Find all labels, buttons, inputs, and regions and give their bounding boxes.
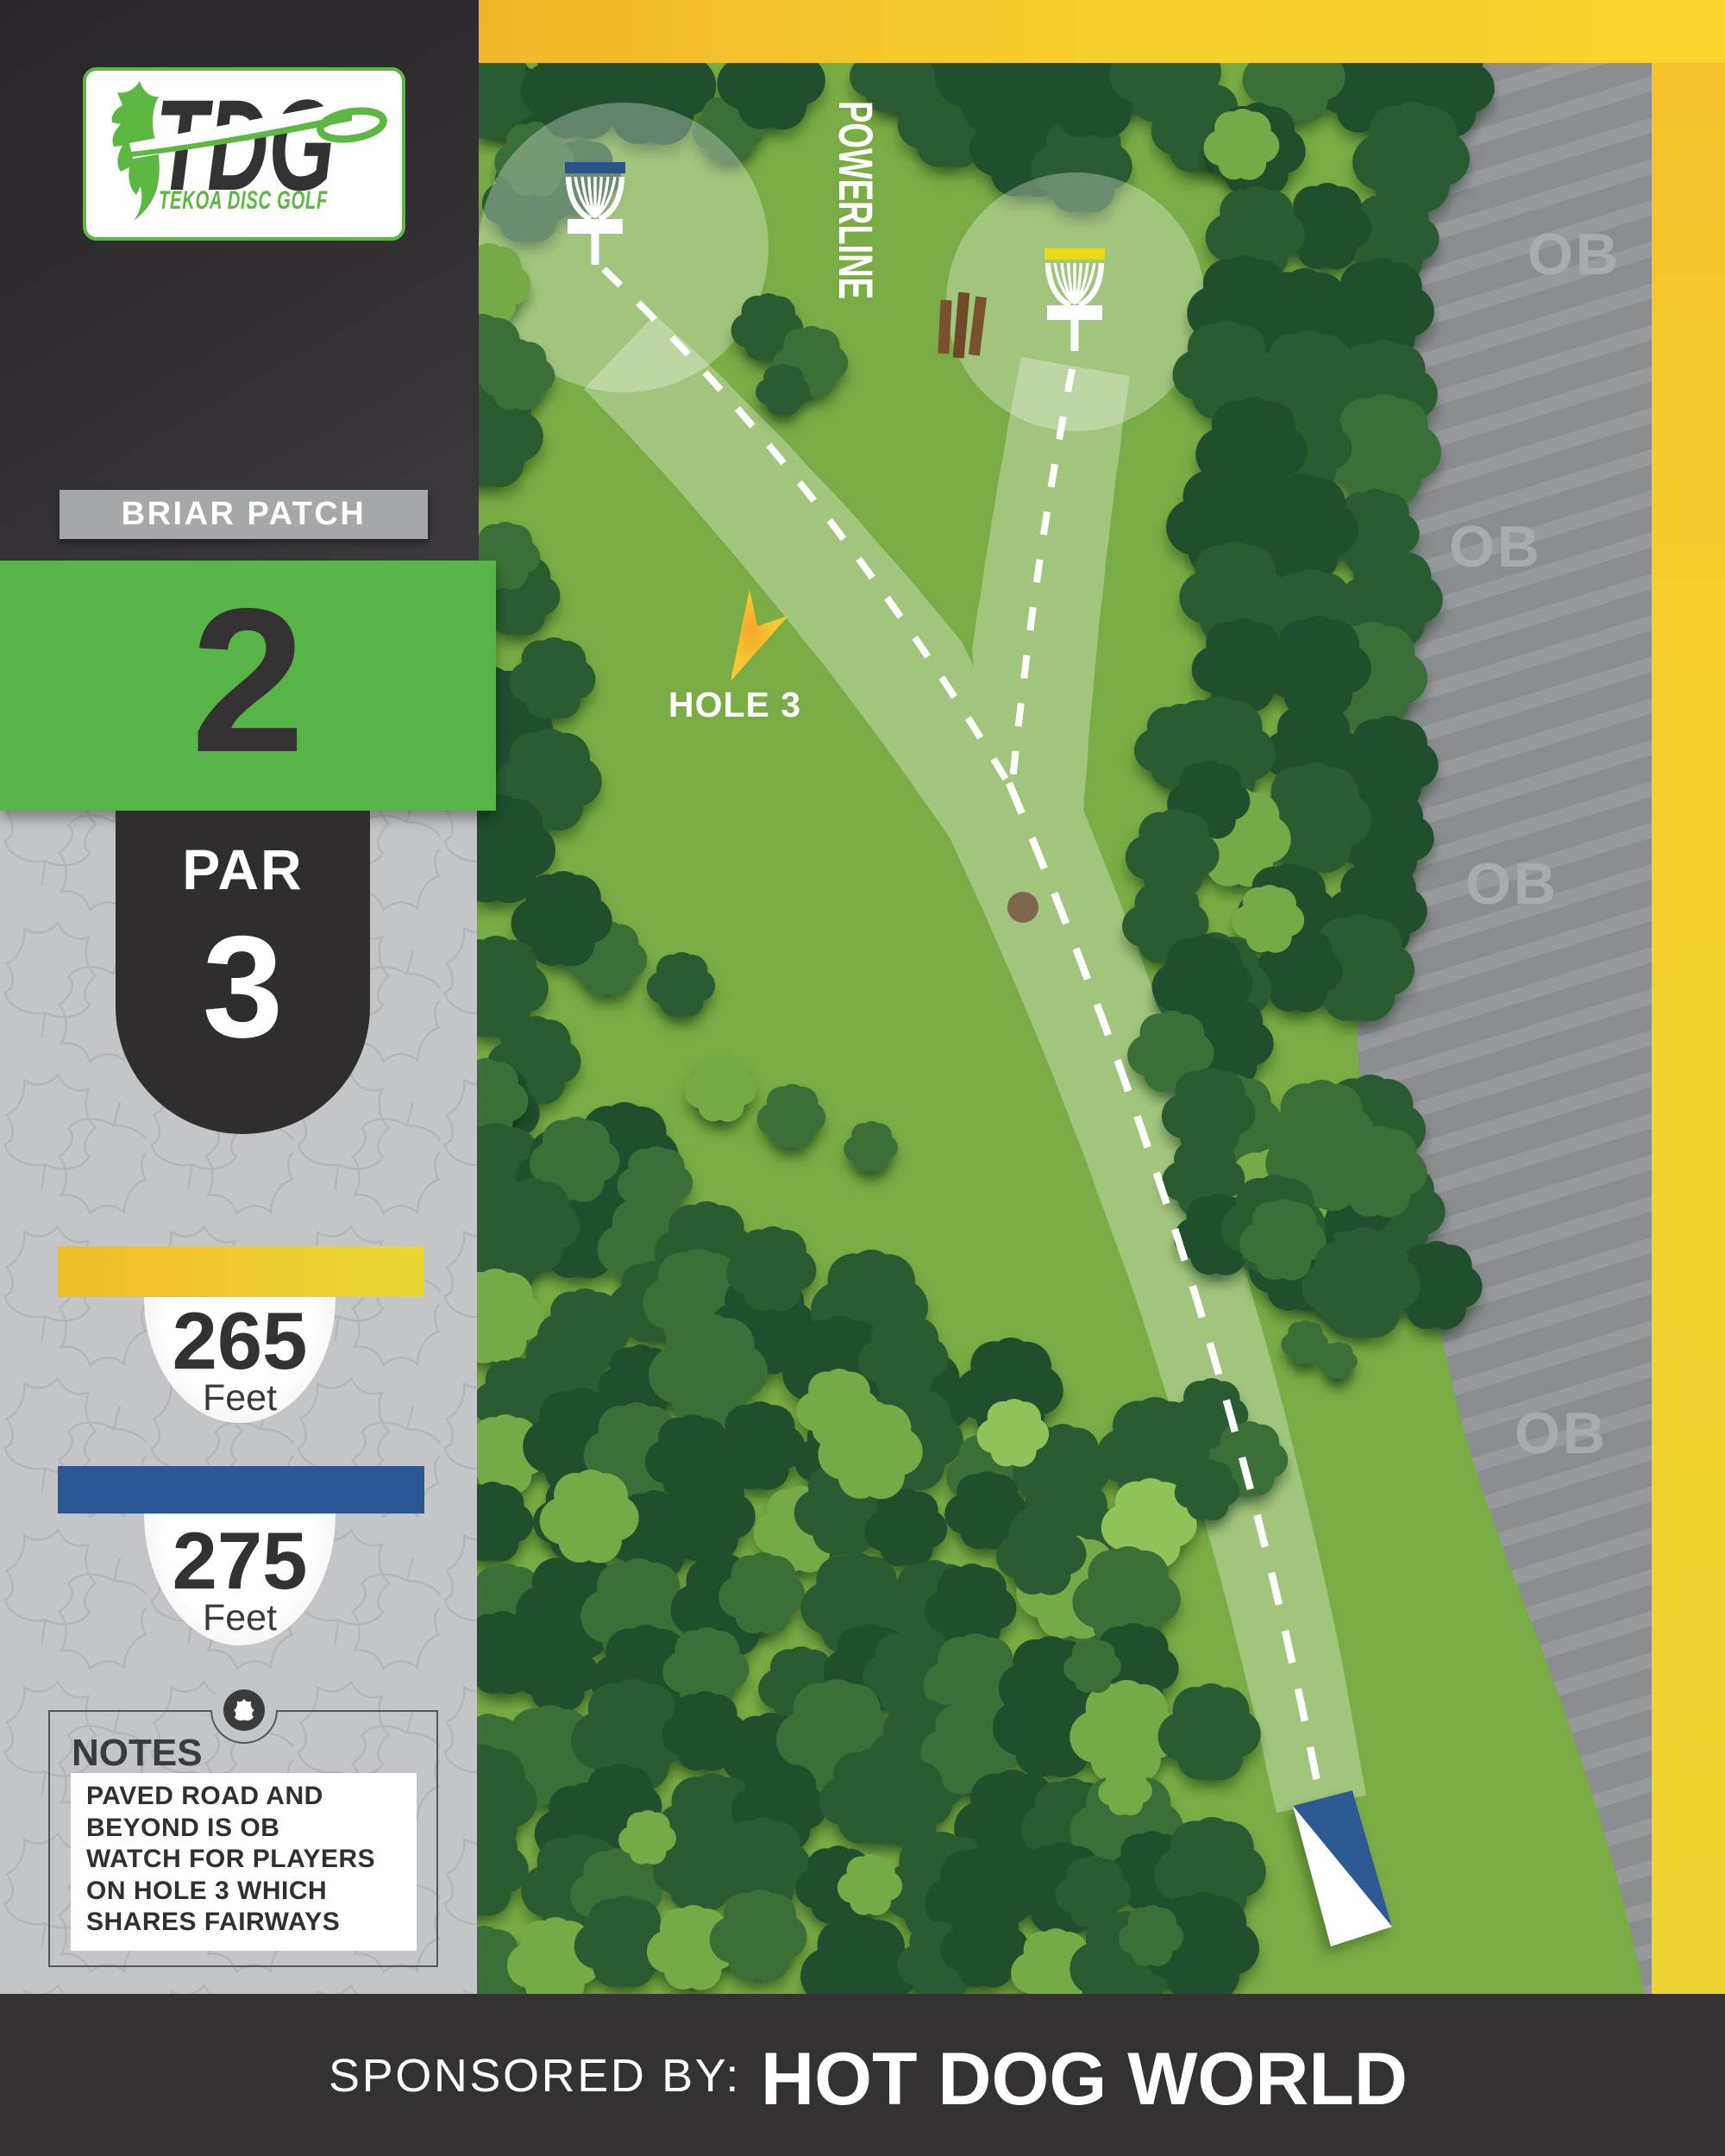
svg-text:OB: OB [1449,514,1542,580]
svg-text:HOLE 3: HOLE 3 [668,685,801,724]
svg-text:OB: OB [1527,222,1621,287]
svg-text:OB: OB [1465,851,1559,917]
svg-text:TEKOA DISC GOLF: TEKOA DISC GOLF [159,186,328,215]
svg-text:POWERLINE: POWERLINE [829,101,883,299]
svg-text:OB: OB [1515,1401,1608,1466]
